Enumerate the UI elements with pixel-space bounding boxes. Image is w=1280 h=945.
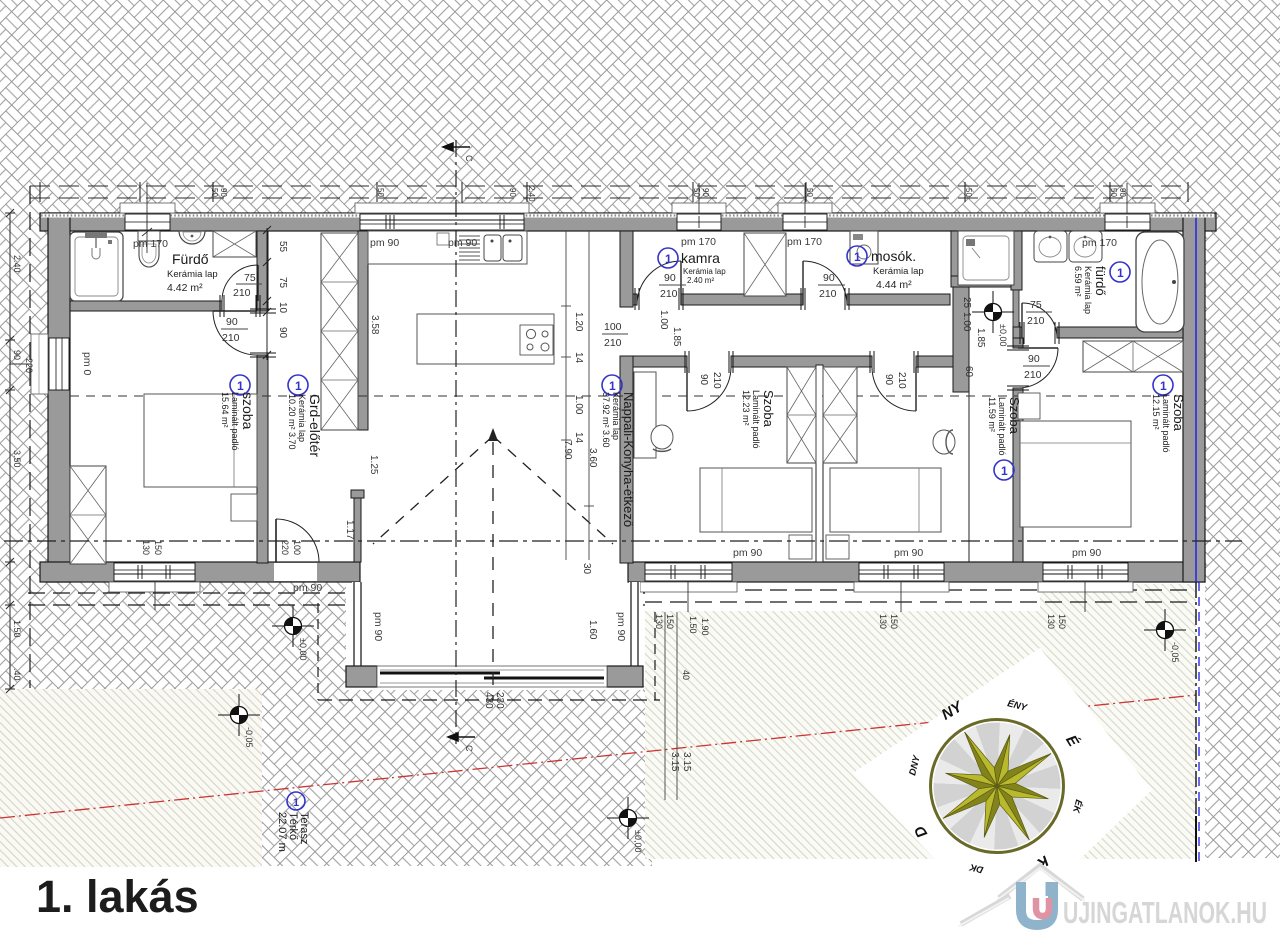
svg-text:90: 90	[664, 272, 676, 284]
svg-text:100: 100	[292, 540, 302, 555]
svg-text:210: 210	[604, 337, 622, 349]
svg-text:150: 150	[889, 614, 899, 629]
svg-text:25: 25	[961, 297, 972, 309]
svg-text:130: 130	[1046, 614, 1056, 629]
svg-text:±0,00: ±0,00	[298, 638, 308, 660]
svg-text:210: 210	[711, 372, 722, 389]
svg-text:60: 60	[963, 366, 974, 378]
svg-text:Kerámia lap: Kerámia lap	[873, 266, 924, 277]
svg-text:pm 0: pm 0	[81, 352, 93, 376]
svg-text:22.07 m: 22.07 m	[276, 812, 288, 852]
svg-text:75: 75	[1030, 299, 1042, 311]
svg-text:14: 14	[573, 432, 584, 444]
svg-text:55: 55	[277, 241, 288, 253]
svg-text:pm 90: pm 90	[615, 612, 627, 641]
svg-text:3.15: 3.15	[669, 752, 680, 772]
svg-text:150: 150	[665, 614, 675, 629]
svg-text:pm 90: pm 90	[733, 547, 762, 559]
svg-text:210: 210	[660, 288, 678, 300]
svg-text:14: 14	[573, 352, 584, 364]
svg-text:2.40 m²: 2.40 m²	[687, 276, 714, 285]
svg-text:37.92 m² 3.60: 37.92 m² 3.60	[601, 392, 611, 448]
svg-text:130: 130	[141, 540, 151, 555]
svg-text:10: 10	[277, 302, 288, 314]
svg-text:4.44 m²: 4.44 m²	[876, 279, 912, 291]
svg-text:pm 90: pm 90	[293, 582, 322, 594]
svg-text:1.85: 1.85	[671, 327, 682, 347]
svg-text:-0,05: -0,05	[244, 727, 254, 748]
svg-text:50: 50	[692, 188, 701, 197]
svg-text:130: 130	[654, 614, 664, 629]
svg-text:50: 50	[376, 188, 385, 197]
svg-text:100: 100	[604, 321, 622, 333]
svg-text:90: 90	[1118, 188, 1127, 197]
svg-text:1.50: 1.50	[12, 620, 22, 638]
svg-text:150: 150	[153, 540, 163, 555]
svg-text:15.64 m²: 15.64 m²	[220, 392, 230, 428]
svg-text:Szoba: Szoba	[761, 390, 776, 428]
svg-text:210: 210	[896, 372, 907, 389]
svg-text:4.42 m²: 4.42 m²	[167, 282, 203, 294]
svg-text:220: 220	[24, 358, 34, 373]
svg-text:C: C	[464, 745, 474, 752]
svg-text:1.90: 1.90	[700, 618, 710, 636]
svg-text:30: 30	[581, 563, 592, 575]
svg-text:Szoba: Szoba	[1171, 394, 1186, 432]
svg-text:Kerámia lap: Kerámia lap	[683, 267, 726, 276]
svg-text:75: 75	[244, 272, 256, 284]
svg-text:90: 90	[508, 188, 517, 197]
svg-text:Kerámia lap: Kerámia lap	[1083, 266, 1093, 314]
svg-text:Kerámia lap: Kerámia lap	[611, 392, 621, 440]
svg-text:2.40: 2.40	[527, 186, 536, 202]
svg-text:230: 230	[494, 692, 505, 709]
svg-text:1: 1	[854, 250, 861, 264]
svg-text:90: 90	[698, 374, 709, 386]
svg-text:1: 1	[1160, 379, 1167, 393]
svg-text:pm 90: pm 90	[370, 237, 399, 249]
svg-text:pm 170: pm 170	[1082, 237, 1117, 249]
svg-text:430: 430	[483, 692, 494, 709]
svg-text:1: 1	[665, 252, 672, 266]
svg-text:1: 1	[295, 379, 302, 393]
svg-text:1: 1	[1117, 266, 1124, 280]
svg-text:Laminált padló: Laminált padló	[751, 390, 761, 449]
svg-text:mosók.: mosók.	[871, 248, 916, 264]
svg-text:Laminált padló: Laminált padló	[1161, 394, 1171, 453]
svg-text:1.20: 1.20	[573, 312, 584, 332]
svg-text:150: 150	[1057, 614, 1067, 629]
svg-text:1: 1	[237, 379, 244, 393]
svg-text:1.25: 1.25	[368, 455, 379, 475]
svg-text:Kerámia lap: Kerámia lap	[297, 394, 307, 442]
svg-text:90: 90	[226, 316, 238, 328]
svg-text:1: 1	[1001, 464, 1008, 478]
svg-text:3.50: 3.50	[12, 450, 22, 468]
svg-text:130: 130	[878, 614, 888, 629]
svg-text:Laminált padló: Laminált padló	[997, 397, 1007, 456]
svg-text:pm 170: pm 170	[787, 236, 822, 248]
svg-text:C: C	[464, 155, 474, 162]
svg-text:12.15 m²: 12.15 m²	[1151, 394, 1161, 430]
svg-text:90: 90	[701, 188, 710, 197]
svg-text:pm 90: pm 90	[372, 612, 384, 641]
svg-text:1.00: 1.00	[573, 395, 584, 415]
svg-text:12.23 m²: 12.23 m²	[741, 390, 751, 426]
svg-text:±0,00: ±0,00	[998, 324, 1008, 346]
svg-text:UJINGATLANOK.HU: UJINGATLANOK.HU	[1063, 895, 1267, 930]
svg-text:50: 50	[805, 188, 814, 197]
svg-text:szoba: szoba	[240, 392, 256, 430]
svg-text:1: 1	[609, 379, 616, 393]
svg-text:75: 75	[277, 277, 288, 289]
svg-text:1.50: 1.50	[688, 616, 698, 634]
svg-text:210: 210	[819, 288, 837, 300]
svg-text:10.20 m² 3.70: 10.20 m² 3.70	[287, 394, 297, 450]
svg-text:Nappali-Konyha-étkező: Nappali-Konyha-étkező	[621, 392, 636, 527]
svg-text:pm 90: pm 90	[894, 547, 923, 559]
svg-text:fürdő: fürdő	[1093, 266, 1108, 296]
svg-text:2.40: 2.40	[12, 255, 22, 273]
svg-text:50: 50	[1109, 188, 1118, 197]
svg-text:1. lakás: 1. lakás	[36, 871, 199, 922]
svg-text:3.15: 3.15	[681, 752, 692, 772]
svg-text:210: 210	[222, 332, 240, 344]
svg-text:Grd-előtér: Grd-előtér	[307, 394, 323, 457]
svg-text:1.00: 1.00	[961, 312, 972, 332]
svg-text:50: 50	[964, 188, 973, 197]
svg-text:3.58: 3.58	[369, 315, 380, 335]
svg-text:Szoba: Szoba	[1007, 397, 1022, 435]
svg-text:-0,05: -0,05	[1170, 642, 1180, 663]
svg-text:6.59 m²: 6.59 m²	[1073, 266, 1083, 297]
svg-text:210: 210	[233, 287, 251, 299]
svg-text:pm 170: pm 170	[681, 236, 716, 248]
svg-text:40: 40	[681, 670, 691, 680]
svg-text:kamra: kamra	[681, 250, 720, 266]
svg-text:1.60: 1.60	[587, 620, 598, 640]
svg-text:±0,00: ±0,00	[633, 830, 643, 852]
svg-text:Kerámia lap: Kerámia lap	[167, 269, 218, 280]
svg-text:Fürdő: Fürdő	[172, 251, 209, 267]
svg-text:90: 90	[1028, 353, 1040, 365]
svg-text:pm 90: pm 90	[448, 237, 477, 249]
svg-text:90: 90	[12, 350, 22, 360]
svg-text:Laminált padló: Laminált padló	[230, 392, 240, 451]
svg-text:90: 90	[277, 327, 288, 339]
svg-text:pm 170: pm 170	[133, 238, 168, 250]
svg-text:1.17: 1.17	[344, 520, 355, 540]
svg-text:210: 210	[1024, 369, 1042, 381]
svg-text:1.00: 1.00	[658, 310, 669, 330]
svg-text:210: 210	[1027, 315, 1045, 327]
svg-text:pm 90: pm 90	[1072, 547, 1101, 559]
svg-text:11.59 m²: 11.59 m²	[987, 397, 997, 432]
svg-text:.40: .40	[12, 668, 22, 681]
svg-text:90: 90	[219, 188, 228, 197]
svg-text:220: 220	[280, 540, 290, 555]
svg-text:1.85: 1.85	[975, 328, 986, 348]
svg-text:7.90: 7.90	[562, 440, 573, 460]
svg-text:1: 1	[293, 797, 299, 809]
svg-text:90: 90	[823, 272, 835, 284]
svg-text:50: 50	[210, 188, 219, 197]
svg-text:90: 90	[883, 374, 894, 386]
